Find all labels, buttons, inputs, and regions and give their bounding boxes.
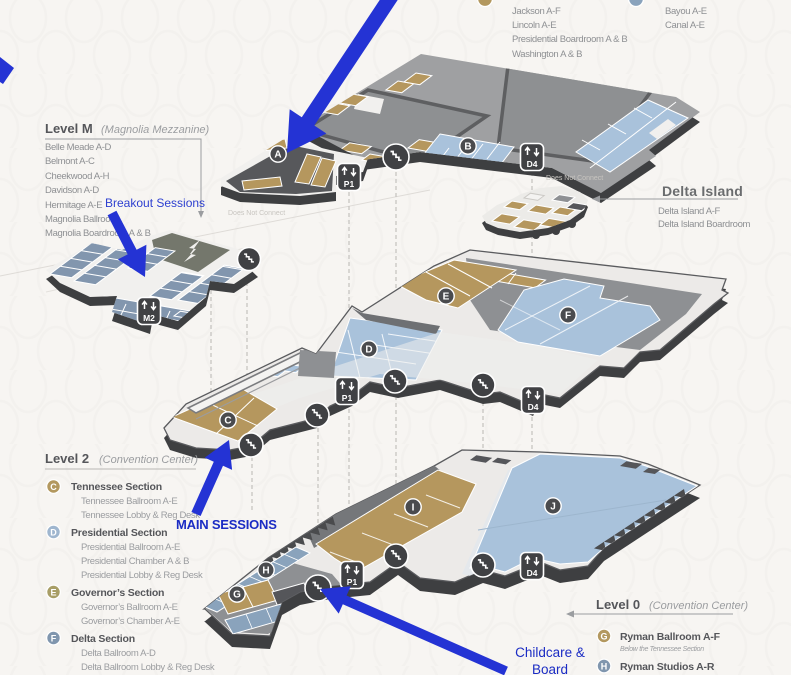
svg-text:Presidential Lobby & Reg Desk: Presidential Lobby & Reg Desk [81, 570, 203, 581]
svg-text:Hermitage A-E: Hermitage A-E [45, 200, 102, 211]
svg-text:MAIN SESSIONS: MAIN SESSIONS [176, 517, 277, 532]
svg-text:D4: D4 [527, 159, 538, 169]
svg-text:Bayou A-E: Bayou A-E [665, 6, 707, 17]
svg-text:E: E [50, 587, 56, 597]
svg-text:Childcare &: Childcare & [515, 645, 585, 660]
svg-text:Level M: Level M [45, 121, 93, 136]
svg-text:B: B [464, 142, 471, 153]
svg-text:Delta Island Boardroom: Delta Island Boardroom [658, 219, 751, 230]
svg-text:Delta Island: Delta Island [662, 183, 743, 199]
svg-text:M2: M2 [143, 313, 155, 323]
svg-text:Does Not Connect: Does Not Connect [228, 210, 285, 217]
svg-text:Ryman Ballroom A-F: Ryman Ballroom A-F [620, 631, 721, 643]
svg-text:H: H [262, 566, 269, 577]
svg-text:Governor’s Ballroom A-E: Governor’s Ballroom A-E [81, 602, 178, 613]
svg-text:H: H [601, 661, 608, 671]
svg-text:D4: D4 [527, 568, 538, 578]
svg-text:Breakout Sessions: Breakout Sessions [105, 196, 205, 210]
svg-text:Delta Island A-F: Delta Island A-F [658, 206, 721, 217]
svg-text:Presidential Chamber A & B: Presidential Chamber A & B [81, 556, 189, 567]
svg-text:Ryman Studios A-R: Ryman Studios A-R [620, 661, 715, 673]
svg-text:I: I [412, 503, 415, 514]
svg-text:P1: P1 [344, 179, 355, 189]
svg-text:Magnolia Ballroom: Magnolia Ballroom [45, 214, 118, 225]
svg-text:Board: Board [532, 662, 568, 675]
svg-text:Level 2: Level 2 [45, 451, 89, 466]
svg-text:Presidential Section: Presidential Section [71, 527, 167, 539]
svg-text:Governor’s Chamber A-E: Governor’s Chamber A-E [81, 616, 180, 627]
svg-text:Lincoln A-E: Lincoln A-E [512, 20, 556, 31]
svg-text:Presidential Ballroom A-E: Presidential Ballroom A-E [81, 542, 180, 553]
svg-text:P1: P1 [347, 577, 358, 587]
svg-text:Tennessee Ballroom A-E: Tennessee Ballroom A-E [81, 496, 177, 507]
svg-text:D: D [365, 345, 372, 356]
svg-text:Below the Tennessee Section: Below the Tennessee Section [620, 646, 704, 653]
svg-text:J: J [550, 502, 556, 513]
svg-text:Davidson A-D: Davidson A-D [45, 185, 99, 196]
svg-text:C: C [224, 416, 231, 427]
svg-text:(Magnolia Mezzanine): (Magnolia Mezzanine) [101, 124, 210, 136]
svg-text:Presidential Boardroom A & B: Presidential Boardroom A & B [512, 34, 627, 45]
svg-text:Delta Section: Delta Section [71, 633, 135, 645]
svg-text:G: G [600, 631, 607, 641]
svg-text:Delta Ballroom Lobby & Reg Des: Delta Ballroom Lobby & Reg Desk [81, 662, 215, 673]
svg-text:Belmont A-C: Belmont A-C [45, 156, 95, 167]
svg-text:Governor’s Section: Governor’s Section [71, 587, 164, 599]
svg-text:Washington A & B: Washington A & B [512, 49, 582, 60]
svg-text:Tennessee Section: Tennessee Section [71, 481, 162, 493]
svg-text:Belle Meade A-D: Belle Meade A-D [45, 142, 112, 153]
svg-text:F: F [51, 633, 57, 643]
svg-text:Level 0: Level 0 [596, 597, 640, 612]
svg-text:(Convention Center): (Convention Center) [649, 600, 748, 612]
svg-text:D4: D4 [528, 402, 539, 412]
svg-text:D: D [50, 527, 57, 537]
svg-text:Does Not Connect: Does Not Connect [546, 175, 603, 182]
svg-text:Cheekwood A-H: Cheekwood A-H [45, 171, 110, 182]
svg-text:Magnolia Boardroom A & B: Magnolia Boardroom A & B [45, 228, 151, 239]
svg-text:G: G [233, 590, 241, 601]
svg-text:F: F [565, 311, 571, 322]
svg-text:P1: P1 [342, 393, 353, 403]
svg-text:E: E [443, 292, 450, 303]
svg-text:(Convention Center): (Convention Center) [99, 454, 198, 466]
svg-text:A: A [274, 150, 281, 161]
svg-text:Jackson A-F: Jackson A-F [512, 6, 561, 17]
svg-text:Delta Ballroom A-D: Delta Ballroom A-D [81, 648, 156, 659]
svg-text:C: C [50, 482, 57, 492]
svg-text:Canal A-E: Canal A-E [665, 20, 705, 31]
